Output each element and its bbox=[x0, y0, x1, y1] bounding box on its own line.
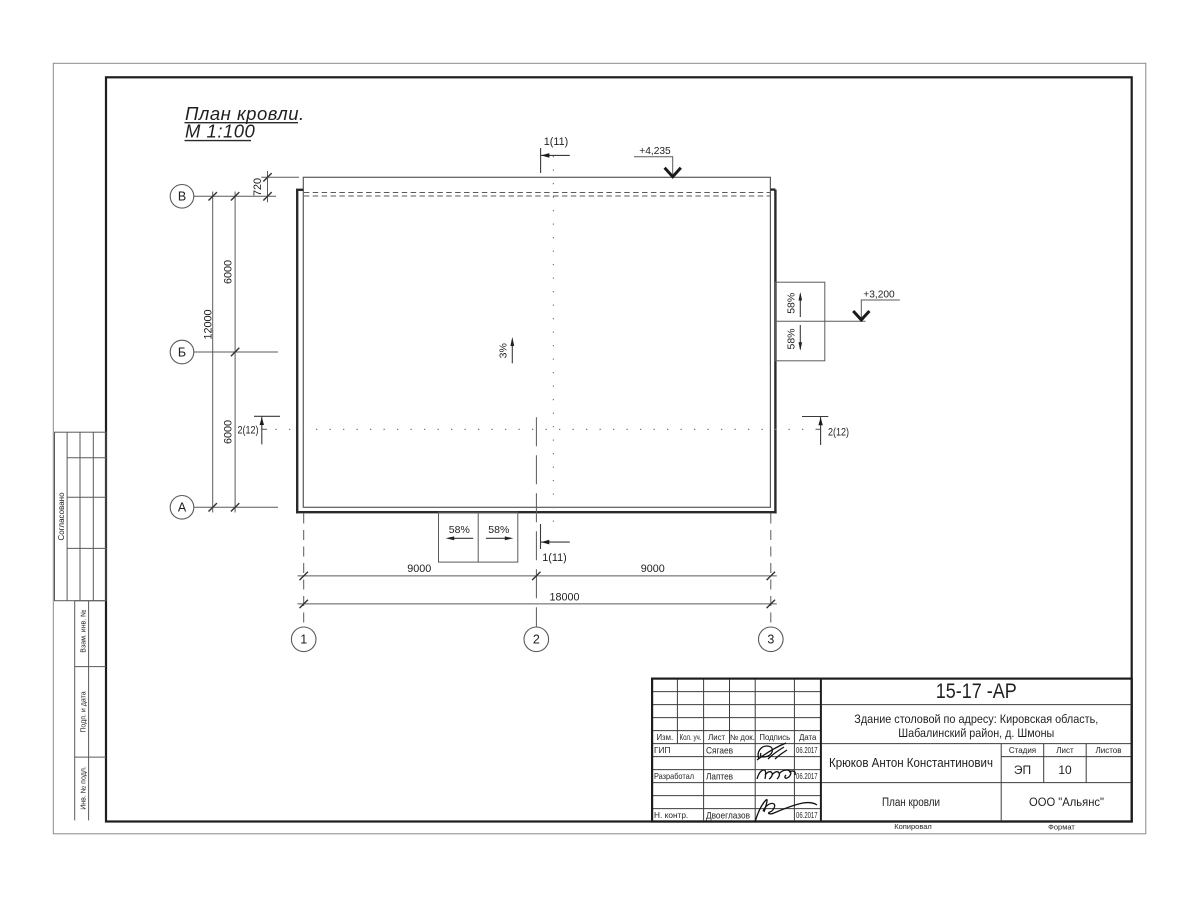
svg-text:Лист: Лист bbox=[1056, 746, 1074, 755]
svg-text:Двоеглазов: Двоеглазов bbox=[706, 810, 750, 821]
svg-text:1: 1 bbox=[300, 633, 307, 647]
svg-text:ГИП: ГИП bbox=[654, 745, 670, 755]
svg-text:12000: 12000 bbox=[203, 309, 215, 339]
svg-text:Лаптев: Лаптев bbox=[706, 771, 733, 782]
svg-text:10: 10 bbox=[1058, 763, 1072, 777]
svg-text:Подпись: Подпись bbox=[759, 733, 790, 742]
svg-text:Согласовано: Согласовано bbox=[57, 492, 66, 541]
svg-text:М 1:100: М 1:100 bbox=[185, 121, 256, 142]
svg-text:Листов: Листов bbox=[1096, 746, 1122, 755]
svg-text:1(11): 1(11) bbox=[544, 136, 568, 148]
svg-text:План кровли: План кровли bbox=[882, 797, 940, 809]
svg-text:ЭП: ЭП bbox=[1014, 763, 1031, 777]
svg-text:Подп. и дата: Подп. и дата bbox=[81, 691, 88, 732]
svg-text:Н. контр.: Н. контр. bbox=[654, 810, 688, 820]
svg-text:Копировал: Копировал bbox=[894, 822, 932, 831]
svg-text:2(12): 2(12) bbox=[828, 427, 849, 439]
svg-text:58%: 58% bbox=[449, 524, 470, 536]
svg-text:18000: 18000 bbox=[549, 591, 579, 603]
svg-text:3%: 3% bbox=[498, 343, 510, 358]
svg-text:Крюков Антон Константинович: Крюков Антон Константинович bbox=[829, 756, 993, 770]
svg-text:3: 3 bbox=[767, 633, 774, 647]
svg-text:Б: Б bbox=[178, 345, 186, 359]
svg-text:58%: 58% bbox=[488, 524, 509, 536]
svg-text:2: 2 bbox=[533, 633, 540, 647]
svg-text:№ док.: № док. bbox=[730, 733, 755, 742]
svg-text:58%: 58% bbox=[786, 328, 798, 349]
svg-text:Лист: Лист bbox=[708, 733, 725, 742]
svg-text:Изм.: Изм. bbox=[656, 733, 673, 742]
svg-text:ООО "Альянс": ООО "Альянс" bbox=[1029, 795, 1104, 809]
svg-text:Стадия: Стадия bbox=[1009, 746, 1036, 755]
svg-text:Шабалинский район, д. Шмоны: Шабалинский район, д. Шмоны bbox=[898, 726, 1054, 740]
svg-text:6000: 6000 bbox=[223, 260, 235, 284]
svg-text:06.2017: 06.2017 bbox=[796, 772, 818, 781]
svg-text:9000: 9000 bbox=[407, 563, 431, 575]
svg-text:15-17 -АР: 15-17 -АР bbox=[936, 680, 1017, 703]
svg-text:Разработал: Разработал bbox=[654, 771, 694, 781]
svg-text:58%: 58% bbox=[786, 293, 798, 314]
svg-text:Здание столовой по адресу: Кир: Здание столовой по адресу: Кировская обл… bbox=[854, 712, 1098, 726]
svg-text:А: А bbox=[178, 501, 187, 515]
svg-text:9000: 9000 bbox=[641, 563, 665, 575]
svg-text:Кол. уч.: Кол. уч. bbox=[680, 733, 702, 742]
svg-text:Формат: Формат bbox=[1048, 823, 1075, 832]
svg-text:6000: 6000 bbox=[223, 420, 235, 444]
svg-text:Сягаев: Сягаев bbox=[706, 745, 733, 756]
svg-text:06.2017: 06.2017 bbox=[796, 746, 818, 755]
svg-text:+3,200: +3,200 bbox=[863, 289, 895, 300]
svg-text:2(12): 2(12) bbox=[238, 424, 259, 436]
svg-text:1(11): 1(11) bbox=[542, 552, 566, 564]
svg-text:Взам. инв. №: Взам. инв. № bbox=[81, 609, 88, 652]
svg-text:06.2017: 06.2017 bbox=[796, 811, 818, 820]
svg-text:В: В bbox=[178, 190, 186, 204]
svg-text:Дата: Дата bbox=[799, 733, 817, 742]
svg-text:Инв. № подл.: Инв. № подл. bbox=[81, 766, 88, 810]
svg-text:+4,235: +4,235 bbox=[639, 146, 671, 157]
svg-text:720: 720 bbox=[252, 178, 264, 196]
